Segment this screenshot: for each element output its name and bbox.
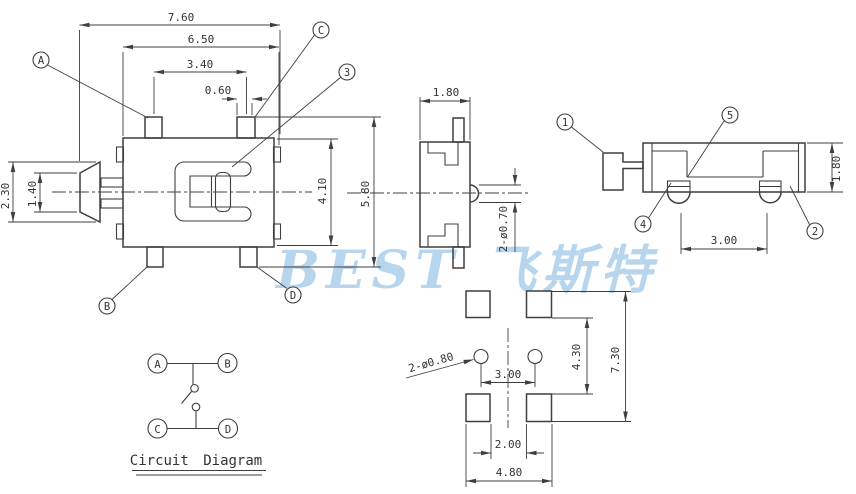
switch-contact-top [191, 385, 199, 393]
dim-label: 5.80 [359, 181, 372, 208]
balloon-d: D [257, 267, 301, 303]
dim-footprint-slot-width: 2.00 [473, 424, 544, 459]
footprint-hole-right [528, 350, 542, 364]
drawing-svg: 7.60 6.50 3.40 0.60 [0, 0, 856, 494]
side-pin-bump [470, 185, 479, 202]
switch-contact-bottom [192, 403, 200, 411]
side-top-tab [453, 118, 464, 142]
footprint-pad-bl [466, 394, 490, 422]
dim-label: 2.30 [0, 183, 12, 210]
dim-footprint-overall-width: 4.80 [466, 424, 552, 487]
terminal-c: C [148, 419, 167, 438]
terminal-label: B [224, 359, 230, 371]
footprint-pad-br [527, 394, 552, 422]
side-inner-step-top [428, 142, 458, 165]
balloon-a: A [33, 52, 148, 118]
balloon-b: B [99, 267, 147, 314]
balloon-label: 4 [640, 219, 646, 231]
dim-label: 4.80 [496, 466, 523, 479]
terminal-label: C [154, 424, 160, 436]
rear-view: 1.80 3.00 1 5 4 [557, 107, 843, 254]
terminal-a: A [148, 354, 167, 373]
front-top-pad-left [145, 117, 162, 138]
dim-side-pin-dia: 2-ø0.70 [479, 168, 521, 252]
balloon-2: 2 [790, 186, 823, 239]
balloon-label: B [104, 301, 110, 313]
front-knob-prong [101, 178, 123, 187]
balloon-label: D [290, 290, 296, 302]
rear-pin-right-tip [760, 192, 782, 203]
dim-front-knob-tip: 1.40 [26, 173, 77, 212]
dim-label: 3.40 [187, 58, 214, 71]
dim-rear-pin-pitch: 3.00 [681, 213, 767, 254]
side-bottom-tab [453, 247, 464, 268]
front-slider-contact [175, 162, 251, 221]
front-knob-prong [101, 199, 123, 208]
dim-front-pad-pitch: 3.40 [154, 58, 247, 114]
balloon-4: 4 [635, 183, 671, 232]
balloon-3: 3 [232, 64, 355, 167]
footprint-view: 2-ø0.80 3.00 4.30 7.30 [406, 291, 631, 487]
front-body [123, 138, 274, 247]
dim-label: 4.10 [316, 178, 329, 205]
balloon-label: 5 [727, 110, 733, 122]
dim-label: 6.50 [188, 33, 215, 46]
terminal-b: B [218, 354, 237, 373]
dim-front-pad-width: 0.60 [205, 84, 267, 115]
circuit-title: Circuit Diagram [130, 453, 262, 469]
terminal-label: D [225, 424, 231, 436]
dim-label: 2.00 [495, 438, 522, 451]
dim-label: 3.00 [711, 234, 738, 247]
footprint-pads [466, 291, 552, 428]
dim-label: 7.60 [168, 11, 195, 24]
dim-footprint-overall-height: 7.30 [552, 292, 631, 422]
dim-rear-height: 1.80 [807, 143, 843, 192]
rear-knob [603, 153, 643, 190]
balloon-label: C [318, 25, 324, 37]
balloon-label: A [38, 55, 45, 67]
front-view: 7.60 6.50 3.40 0.60 [0, 11, 381, 314]
switch-blade [182, 392, 192, 404]
dim-footprint-hole-dia: 2-ø0.80 [406, 350, 474, 378]
dim-label: 2-ø0.70 [497, 206, 510, 252]
dim-label: 1.80 [433, 86, 460, 99]
dim-label: 0.60 [205, 84, 232, 97]
side-inner-step-bottom [428, 224, 458, 247]
dim-label: 7.30 [609, 347, 622, 374]
dim-label: 1.40 [26, 181, 39, 208]
footprint-hole-left [474, 350, 488, 364]
dim-label: 3.00 [495, 368, 522, 381]
balloon-c: C [255, 22, 329, 117]
front-top-pad-right [237, 117, 255, 138]
engineering-drawing-canvas: BEST 飞斯特 [0, 0, 856, 494]
balloon-label: 1 [562, 117, 568, 129]
balloon-1: 1 [557, 114, 603, 152]
front-bottom-pad-left [147, 247, 163, 267]
front-part-outline [52, 117, 312, 267]
dim-label: 4.30 [570, 344, 583, 371]
balloon-label: 3 [344, 67, 350, 79]
rear-pin-left-tip [668, 192, 691, 203]
dim-footprint-pad-gap: 4.30 [552, 318, 593, 394]
balloon-5: 5 [688, 107, 739, 177]
terminal-d: D [219, 419, 238, 438]
footprint-pad-tr [527, 291, 552, 318]
dim-label: 1.80 [830, 156, 843, 183]
balloon-label: 2 [812, 226, 818, 238]
circuit-diagram: A B C D Circuit Diagram [130, 354, 266, 476]
front-bottom-pad-right [240, 247, 257, 267]
footprint-pad-tl [466, 291, 490, 318]
dim-side-width: 1.80 [420, 86, 470, 140]
terminal-label: A [154, 359, 161, 371]
